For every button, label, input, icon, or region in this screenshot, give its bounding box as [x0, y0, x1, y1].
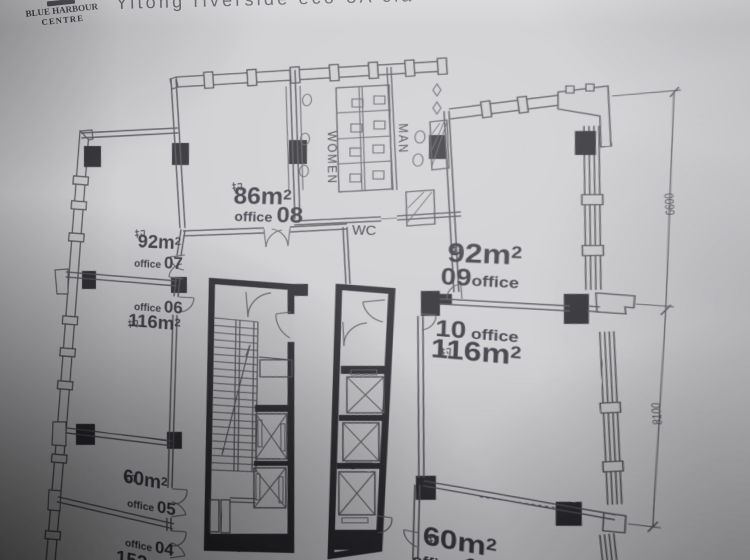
- svg-text:60m2: 60m2: [422, 522, 497, 560]
- svg-text:8100: 8100: [651, 403, 666, 426]
- svg-text:office 07: office 07: [134, 253, 183, 274]
- svg-text:6600: 6600: [664, 193, 678, 216]
- svg-text:MAN: MAN: [396, 123, 410, 154]
- svg-text:116m2: 116m2: [128, 310, 181, 335]
- svg-text:WC: WC: [352, 224, 377, 239]
- svg-text:60m2: 60m2: [123, 465, 168, 494]
- svg-text:WOMEN: WOMEN: [324, 131, 339, 185]
- svg-text:office 05: office 05: [127, 492, 176, 519]
